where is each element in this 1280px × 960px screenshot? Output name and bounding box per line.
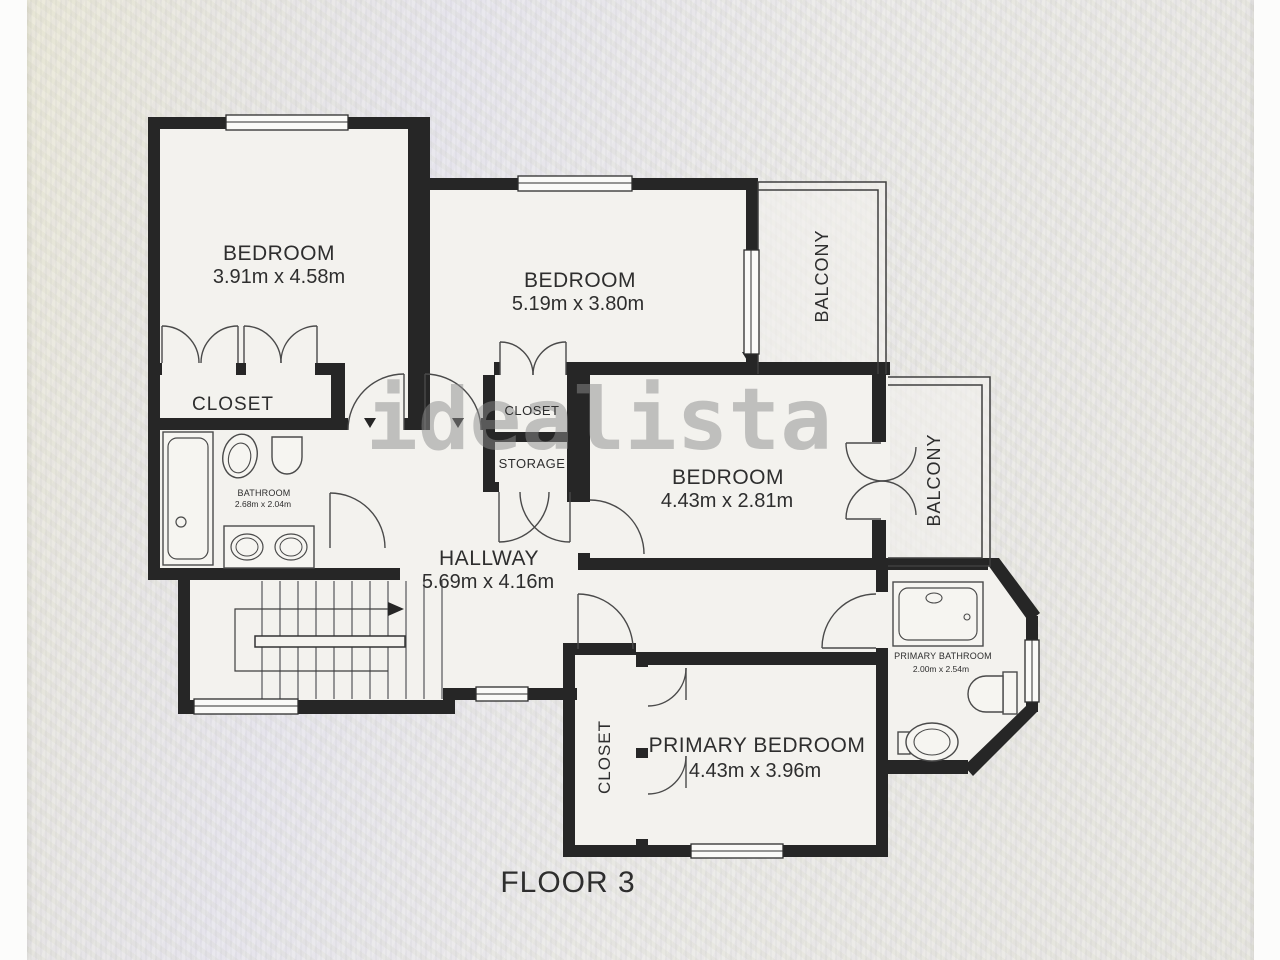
photo-edge-right: [1254, 0, 1280, 960]
bedroom1-dims: 3.91m x 4.58m: [213, 266, 345, 288]
balcony-right-label: BALCONY: [924, 433, 944, 526]
floor-title: FLOOR 3: [500, 866, 635, 899]
window: [744, 250, 759, 354]
hallway-label: HALLWAY: [439, 547, 539, 570]
window: [194, 699, 298, 714]
bedroom3-label: BEDROOM: [672, 466, 784, 489]
hallway-dims: 5.69m x 4.16m: [422, 571, 554, 593]
primary-bedroom-dims: 4.43m x 3.96m: [689, 760, 821, 782]
vanity-icon: [224, 526, 314, 568]
floor-plan-photo: idealista BEDROOM 3.91m x 4.58m BEDROOM …: [0, 0, 1280, 960]
primary-bathtub-icon: [893, 582, 983, 646]
primary-bedroom-label: PRIMARY BEDROOM: [649, 734, 866, 757]
bathroom-dims: 2.68m x 2.04m: [235, 499, 291, 509]
closet-bedroom1-label: CLOSET: [192, 394, 274, 415]
storage-label: STORAGE: [499, 456, 566, 471]
window: [518, 176, 632, 191]
sink-icon: [272, 437, 302, 474]
idealista-watermark: idealista: [366, 370, 832, 470]
bedroom2-label: BEDROOM: [524, 269, 636, 292]
window: [1025, 640, 1039, 702]
primary-bathroom-label: PRIMARY BATHROOM: [894, 651, 992, 661]
photo-edge-left: [0, 0, 27, 960]
bathtub-icon: [163, 432, 213, 565]
window: [226, 115, 348, 130]
stair-rail: [255, 636, 405, 647]
window: [476, 687, 528, 701]
floor-plan: idealista BEDROOM 3.91m x 4.58m BEDROOM …: [0, 0, 1280, 960]
primary-bathroom-dims: 2.00m x 2.54m: [913, 664, 969, 674]
window: [691, 844, 783, 858]
bedroom3-dims: 4.43m x 2.81m: [661, 490, 793, 512]
closet-primary-label: CLOSET: [595, 720, 614, 794]
bedroom1-label: BEDROOM: [223, 242, 335, 265]
closet-hall-label: CLOSET: [504, 403, 559, 418]
bathroom-label: BATHROOM: [238, 488, 291, 498]
balcony-top-label: BALCONY: [812, 229, 832, 322]
bedroom2-dims: 5.19m x 3.80m: [512, 293, 644, 315]
